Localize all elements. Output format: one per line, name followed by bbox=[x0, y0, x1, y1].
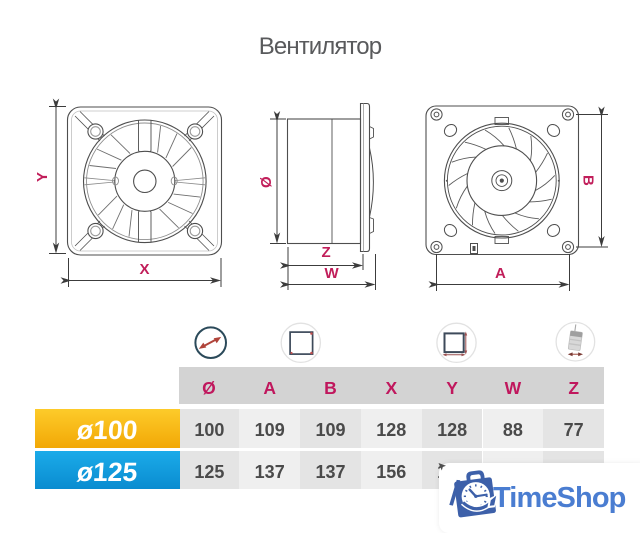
svg-text:Z: Z bbox=[322, 244, 331, 261]
svg-text:B: B bbox=[580, 175, 597, 186]
svg-text:Ø: Ø bbox=[258, 176, 275, 188]
svg-text:Y: Y bbox=[34, 172, 51, 182]
svg-text:A: A bbox=[495, 265, 506, 282]
svg-text:W: W bbox=[325, 265, 340, 282]
svg-text:X: X bbox=[140, 261, 150, 278]
